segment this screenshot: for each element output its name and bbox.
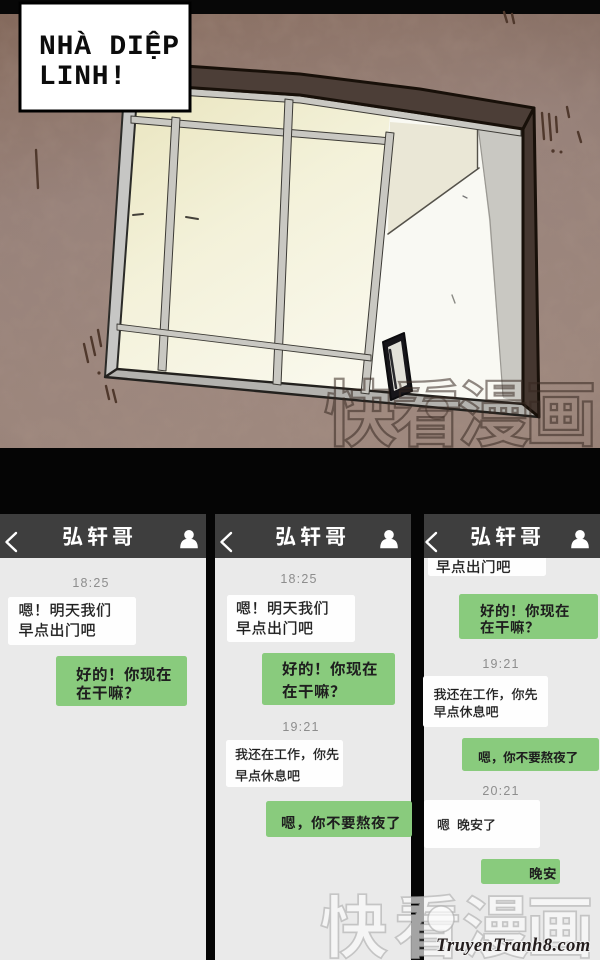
svg-text:18:25: 18:25	[280, 572, 317, 586]
svg-text:19:21: 19:21	[282, 720, 319, 734]
svg-text:TruyenTranh8.com: TruyenTranh8.com	[436, 936, 591, 956]
svg-text:18:25: 18:25	[72, 576, 109, 590]
svg-text:19:21: 19:21	[482, 657, 519, 671]
svg-text:20:21: 20:21	[482, 784, 519, 798]
svg-text:LINH!: LINH!	[39, 62, 127, 93]
svg-text:NHÀ DIỆP: NHÀ DIỆP	[39, 31, 180, 63]
